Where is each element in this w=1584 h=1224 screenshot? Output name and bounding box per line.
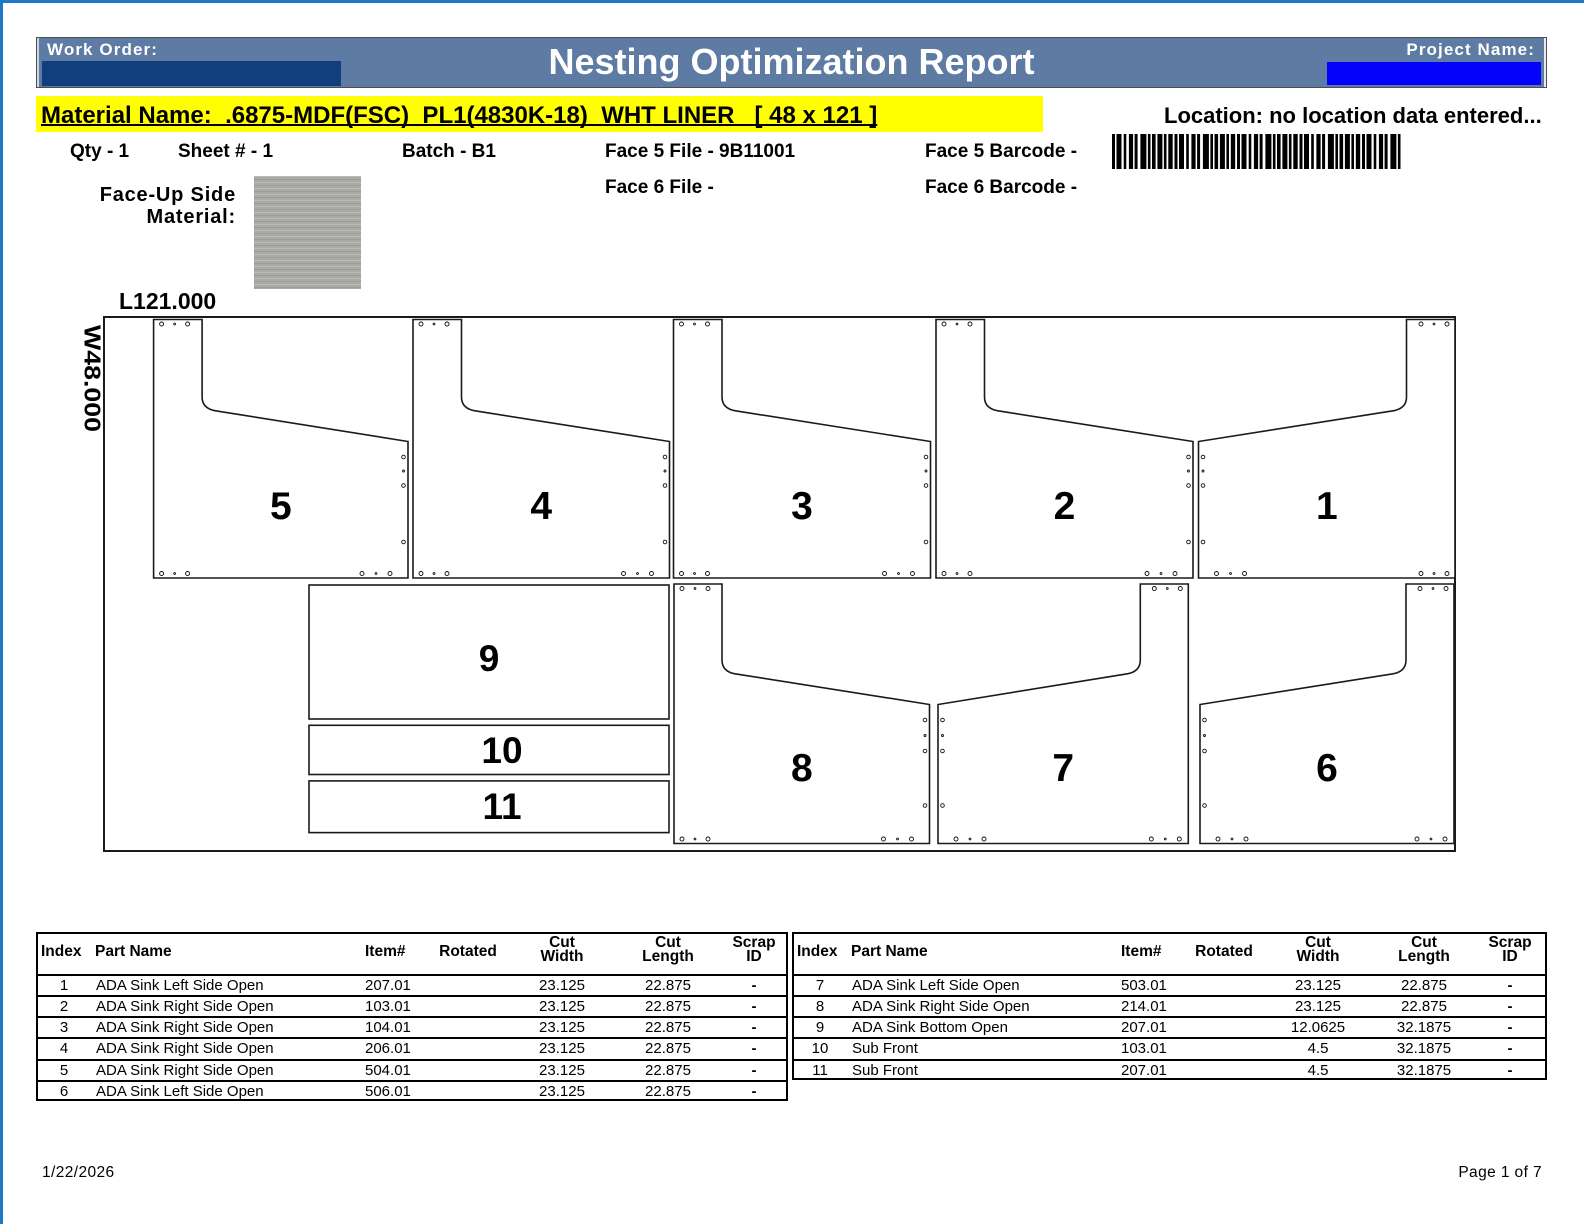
svg-text:6: 6 [1316,747,1338,790]
svg-text:8: 8 [791,747,813,790]
svg-text:2: 2 [1054,485,1076,528]
svg-text:9: 9 [479,638,500,679]
svg-text:5: 5 [270,485,292,528]
svg-text:11: 11 [482,786,521,827]
svg-text:1: 1 [1316,485,1338,528]
svg-text:4: 4 [530,485,552,528]
svg-text:W48.000: W48.000 [80,325,106,432]
svg-text:7: 7 [1052,747,1074,790]
svg-text:L121.000: L121.000 [119,288,216,314]
svg-text:3: 3 [791,485,813,528]
svg-text:10: 10 [481,730,522,771]
